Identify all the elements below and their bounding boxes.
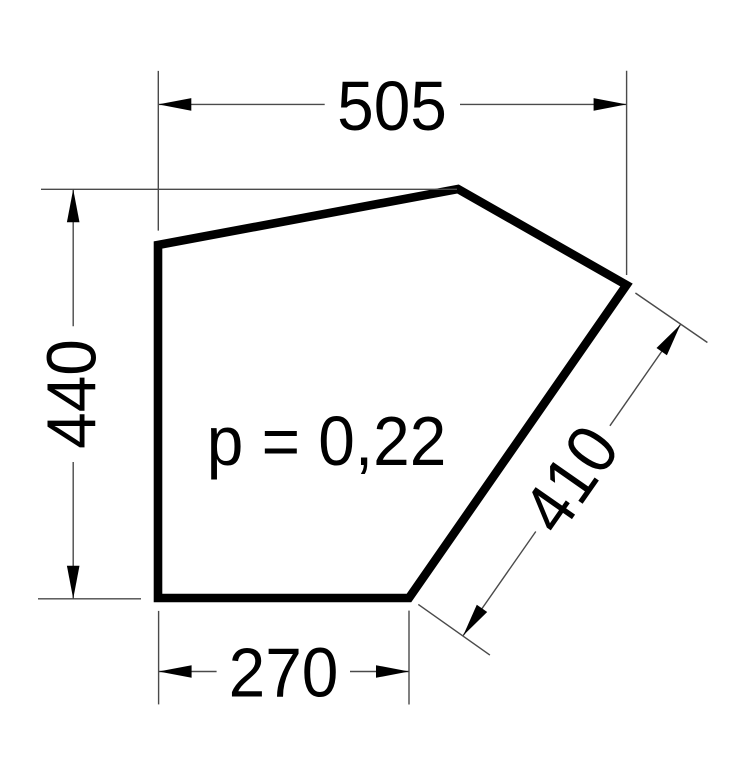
svg-text:270: 270 <box>229 635 339 712</box>
svg-text:440: 440 <box>34 339 111 449</box>
svg-text:505: 505 <box>337 68 447 145</box>
svg-text:p = 0,22: p = 0,22 <box>207 403 447 480</box>
